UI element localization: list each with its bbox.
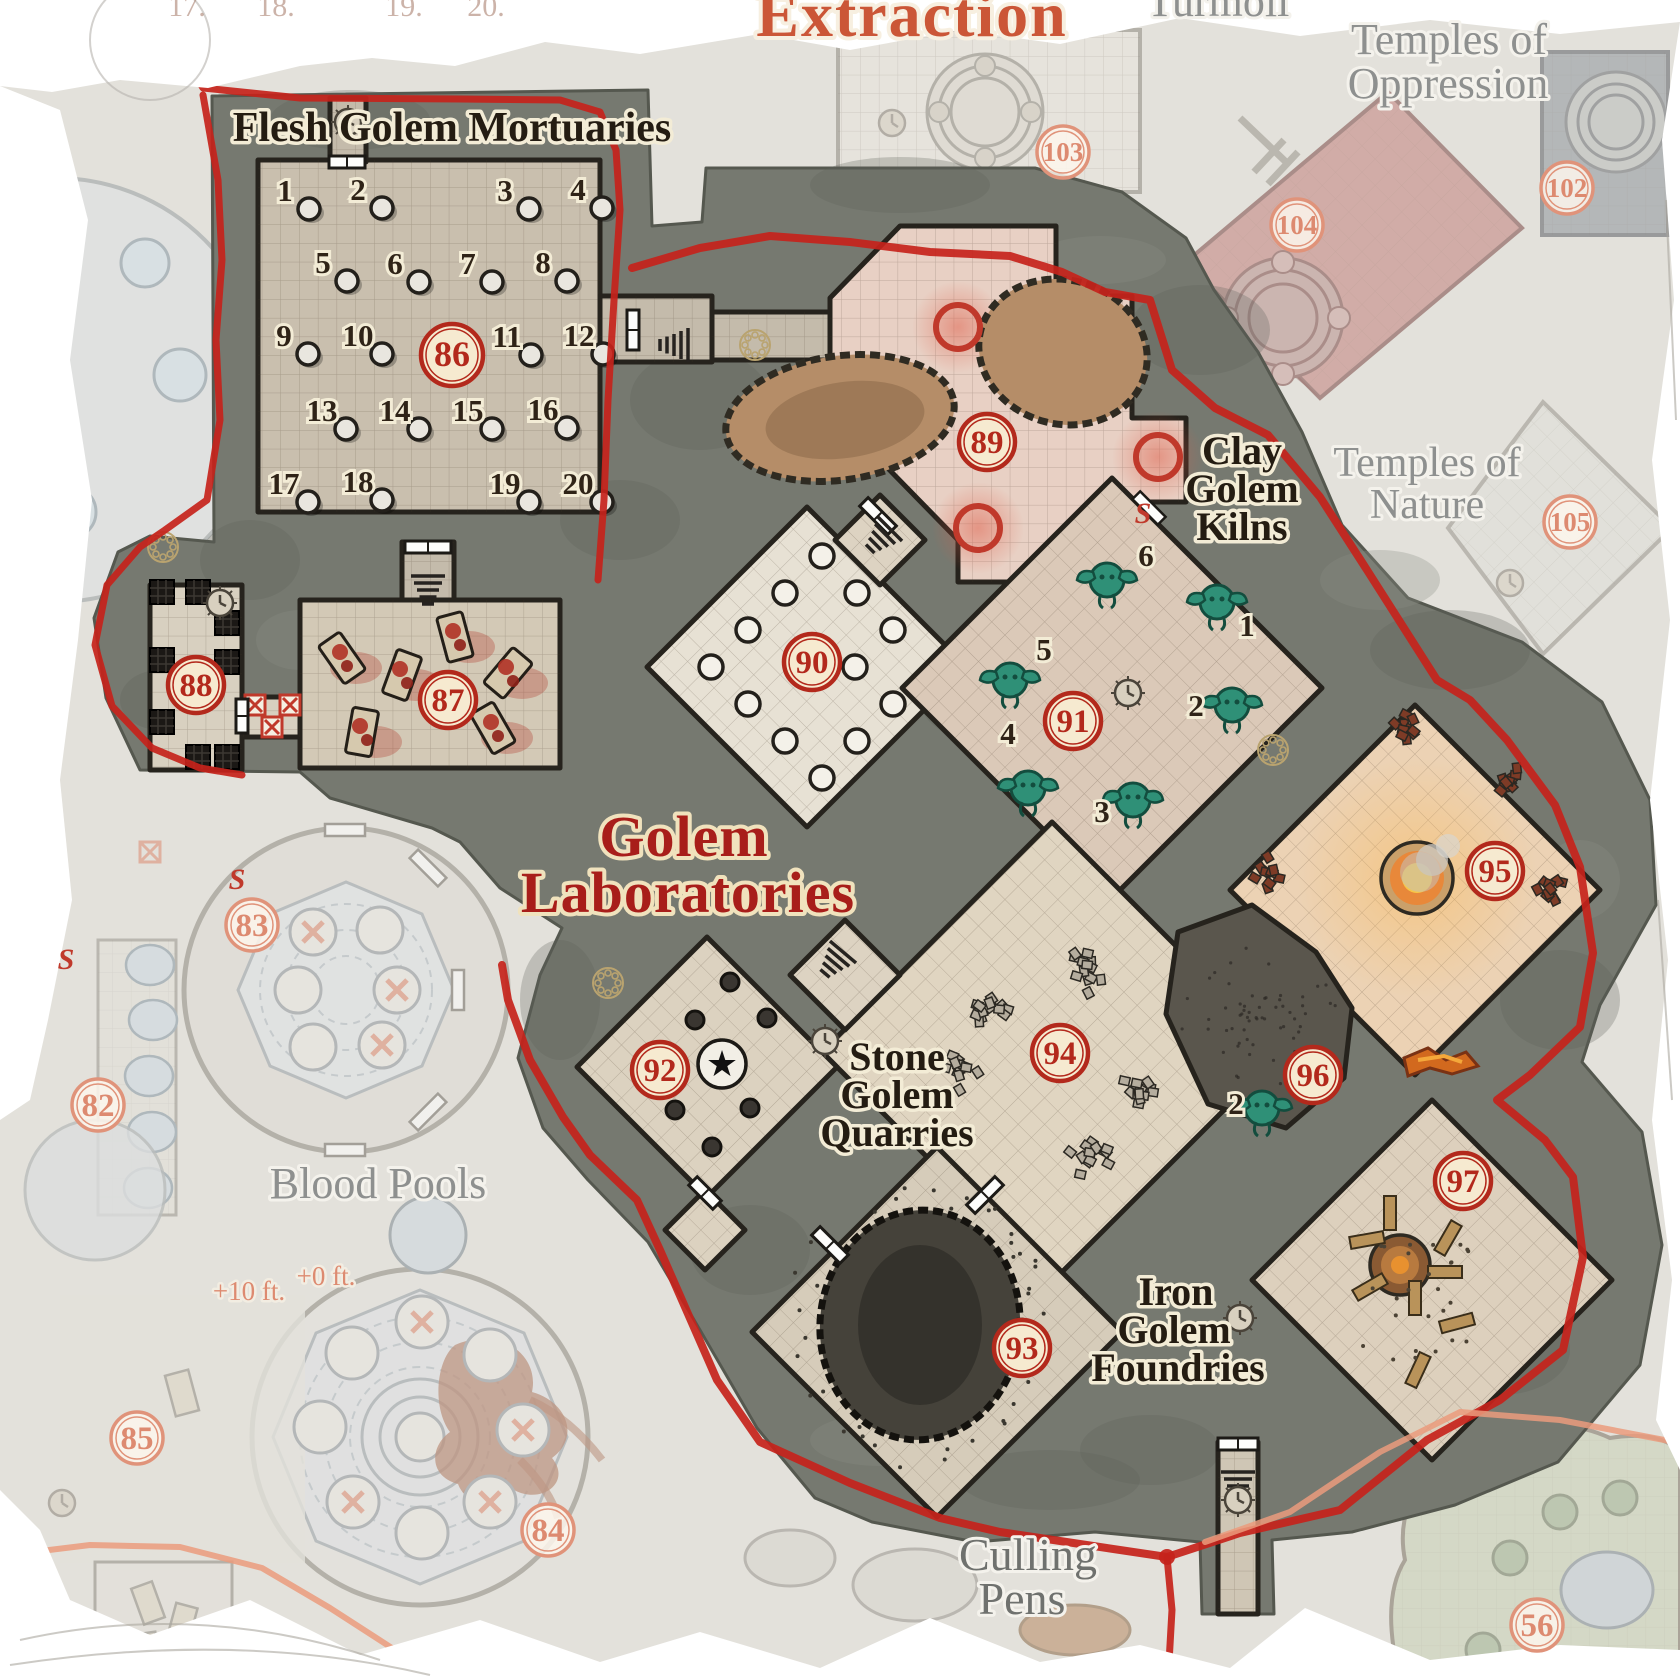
label-map-title: Laboratories [521, 860, 855, 925]
label-temples-of-nature: Temples of [1333, 440, 1520, 486]
room-number: 56 [1521, 1608, 1554, 1644]
label-culling-pens: Pens [979, 1573, 1066, 1624]
room-marker-105[interactable]: 105 [1544, 496, 1596, 548]
room-number: 102 [1547, 173, 1588, 203]
label-iron-golem-foundries: Foundries [1091, 1345, 1264, 1390]
room-number: 96 [1297, 1058, 1330, 1094]
room-marker-90[interactable]: 90 [784, 634, 840, 690]
slab-number: 10 [343, 318, 374, 353]
slab-number: 19 [490, 466, 521, 501]
ghost-grid-number: 17. [168, 0, 206, 23]
slab-number: 18 [343, 464, 374, 499]
golem-number: 4 [1000, 716, 1016, 751]
room-marker-96[interactable]: 96 [1285, 1047, 1341, 1103]
label-blood-pools: Blood Pools [270, 1159, 486, 1208]
party-star-marker[interactable]: ★ [698, 1040, 746, 1088]
ghost-grid-number: 18. [257, 0, 295, 23]
room-number: 105 [1550, 507, 1591, 537]
golem-number: 2 [1228, 1086, 1244, 1121]
label-temples-of-oppression: Temples of [1351, 15, 1547, 64]
room-number: 94 [1044, 1036, 1077, 1072]
door [627, 310, 639, 350]
golem-number: 1 [1239, 608, 1255, 643]
door [329, 156, 365, 168]
clock-glyph-icon [1221, 1483, 1255, 1517]
slab-number: 5 [315, 245, 331, 280]
golem-number: 5 [1036, 632, 1052, 667]
slab-number: 1 [277, 173, 293, 208]
room-marker-95[interactable]: 95 [1467, 843, 1523, 899]
label-turmoil: Turmoil [1147, 0, 1290, 26]
room-marker-84[interactable]: 84 [522, 1504, 574, 1556]
golem-laboratories-map: 12345678910111213141516171819206152432★ … [0, 0, 1680, 1680]
slab-number: 2 [350, 172, 366, 207]
clock-glyph-icon [808, 1024, 842, 1058]
room-marker-93[interactable]: 93 [994, 1320, 1050, 1376]
room-marker-56[interactable]: 56 [1511, 1599, 1563, 1651]
room-number: 103 [1043, 137, 1084, 167]
label-extraction: Extraction [756, 0, 1068, 50]
slab-number: 6 [387, 246, 403, 281]
star-icon: ★ [706, 1044, 738, 1084]
room-marker-103[interactable]: 103 [1037, 126, 1089, 178]
room-marker-92[interactable]: 92 [632, 1042, 688, 1098]
slab-number: 12 [564, 318, 595, 353]
room-number: 88 [180, 668, 213, 704]
slab-number: 11 [492, 319, 521, 354]
room-marker-87[interactable]: 87 [420, 672, 476, 728]
ghost-grid-number: 20. [467, 0, 505, 23]
slab-number: 9 [276, 318, 292, 353]
room-marker-89[interactable]: 89 [959, 414, 1015, 470]
slab-number: 14 [380, 393, 411, 428]
room-marker-94[interactable]: 94 [1032, 1025, 1088, 1081]
golem-number: 6 [1138, 538, 1154, 573]
label-temples-of-nature: Nature [1370, 482, 1484, 528]
room-number: 95 [1479, 854, 1512, 890]
room-number: 92 [644, 1053, 677, 1089]
slab-number: 13 [307, 393, 338, 428]
secret-door-marker: S [58, 943, 75, 976]
map-canvas: 12345678910111213141516171819206152432★ … [0, 0, 1680, 1680]
secret-door-s: S [58, 943, 75, 976]
label-clay-golem-kilns: Kilns [1196, 504, 1287, 549]
room-marker-86[interactable]: 86 [421, 324, 483, 386]
room-marker-91[interactable]: 91 [1045, 693, 1101, 749]
slab-number: 15 [453, 393, 484, 428]
room-number: 90 [796, 645, 829, 681]
room-number: 97 [1447, 1164, 1480, 1200]
secret-door-marker: S [229, 863, 246, 896]
label-stone-golem-quarries: Quarries [820, 1110, 973, 1155]
label-elevation-plus-0: +0 ft. [297, 1261, 356, 1291]
clock-glyph-icon [203, 586, 237, 620]
room-number: 85 [121, 1421, 154, 1457]
slab-number: 7 [460, 246, 476, 281]
room-marker-83[interactable]: 83 [226, 899, 278, 951]
room-number: 93 [1006, 1331, 1039, 1367]
label-temples-of-oppression: Oppression [1348, 59, 1548, 108]
label-flesh-golem-mortuaries: Flesh Golem Mortuaries [233, 105, 672, 151]
slab-number: 3 [497, 173, 513, 208]
ghost-grid-number: 19. [385, 0, 423, 23]
door [405, 541, 451, 553]
room-marker-104[interactable]: 104 [1271, 199, 1323, 251]
room-marker-97[interactable]: 97 [1435, 1153, 1491, 1209]
room-number: 91 [1057, 704, 1090, 740]
golem-number: 2 [1188, 688, 1204, 723]
slab-number: 8 [535, 245, 551, 280]
room-number: 89 [971, 425, 1004, 461]
slab-number: 20 [563, 466, 594, 501]
slab-number: 4 [570, 172, 586, 207]
door [1218, 1438, 1258, 1450]
room-number: 84 [532, 1513, 565, 1549]
room-marker-88[interactable]: 88 [168, 657, 224, 713]
room-marker-102[interactable]: 102 [1541, 162, 1593, 214]
room-number: 87 [432, 683, 465, 719]
door [236, 699, 248, 733]
room-number: 82 [82, 1088, 115, 1124]
golem-number: 3 [1094, 794, 1110, 829]
slab-number: 17 [269, 466, 300, 501]
room-marker-85[interactable]: 85 [111, 1412, 163, 1464]
room-number: 86 [434, 334, 470, 374]
secret-door-s: S [229, 863, 246, 896]
room-number: 83 [236, 908, 269, 944]
label-elevation-plus-10: +10 ft. [213, 1276, 285, 1306]
room-number: 104 [1277, 210, 1318, 240]
room-marker-82[interactable]: 82 [72, 1079, 124, 1131]
secret-door-s: S [1135, 497, 1152, 530]
clock-glyph-icon [1111, 676, 1145, 710]
slab-number: 16 [528, 392, 559, 427]
